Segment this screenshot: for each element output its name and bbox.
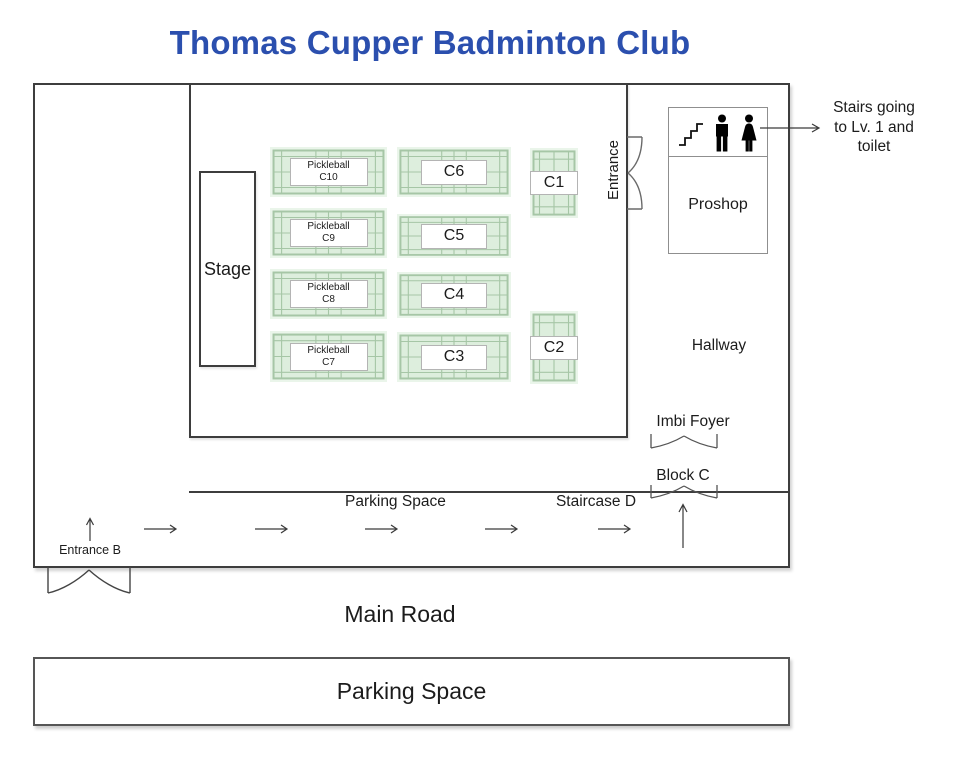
up-arrow-icon	[84, 517, 96, 541]
man-icon	[712, 114, 732, 152]
stage-area: Stage	[199, 171, 256, 367]
right-arrow-icon	[760, 122, 824, 134]
proshop-label: Proshop	[688, 196, 748, 214]
woman-icon	[738, 114, 760, 152]
right-arrow-icon	[485, 523, 521, 535]
right-arrow-icon	[144, 523, 180, 535]
double-door-icon	[47, 567, 131, 599]
staircase-d-label: Staircase D	[546, 493, 646, 511]
court-c9: Pickleball C9	[270, 208, 387, 258]
court-c2: C2	[530, 311, 578, 384]
double-door-icon	[650, 434, 718, 451]
court-c3: C3	[397, 332, 511, 382]
court-c10: Pickleball C10	[270, 147, 387, 197]
court-label: C6	[421, 160, 487, 185]
court-label: C4	[421, 283, 487, 308]
court-c6: C6	[397, 147, 511, 197]
court-c8: Pickleball C8	[270, 269, 387, 319]
hallway-label: Hallway	[669, 337, 769, 355]
stairs-note: Stairs going to Lv. 1 and toilet	[822, 98, 926, 157]
imbi-foyer-label: Imbi Foyer	[643, 413, 743, 431]
main-road-label: Main Road	[0, 601, 800, 628]
stage-label: Stage	[204, 259, 251, 280]
entrance-b-label: Entrance B	[40, 543, 140, 557]
court-c1: C1	[530, 148, 578, 218]
floor-plan: Thomas Cupper Badminton Club Stage Pickl…	[0, 0, 960, 763]
up-arrow-icon	[677, 503, 689, 548]
right-arrow-icon	[255, 523, 291, 535]
court-label: Pickleball C8	[290, 280, 368, 308]
block-c-label: Block C	[633, 467, 733, 485]
entrance-label: Entrance	[605, 130, 621, 210]
right-arrow-icon	[598, 523, 634, 535]
stairs-toilet-room	[668, 107, 768, 157]
double-door-icon	[650, 485, 718, 501]
parking-space-area: Parking Space	[33, 657, 790, 726]
court-c5: C5	[397, 214, 511, 258]
court-label: C3	[421, 345, 487, 370]
court-c4: C4	[397, 272, 511, 318]
double-door-icon	[627, 136, 647, 210]
court-label: C2	[530, 336, 578, 360]
parking-space-label: Parking Space	[345, 493, 445, 511]
court-c7: Pickleball C7	[270, 331, 387, 382]
court-label: Pickleball C10	[290, 158, 368, 186]
parking-space-label: Parking Space	[337, 678, 487, 705]
court-label: Pickleball C9	[290, 219, 368, 247]
court-label: C5	[421, 224, 487, 249]
stairs-icon	[678, 119, 704, 147]
page-title: Thomas Cupper Badminton Club	[0, 24, 860, 62]
proshop-room: Proshop	[668, 156, 768, 254]
right-arrow-icon	[365, 523, 401, 535]
court-label: C1	[530, 171, 578, 195]
court-label: Pickleball C7	[290, 343, 368, 371]
